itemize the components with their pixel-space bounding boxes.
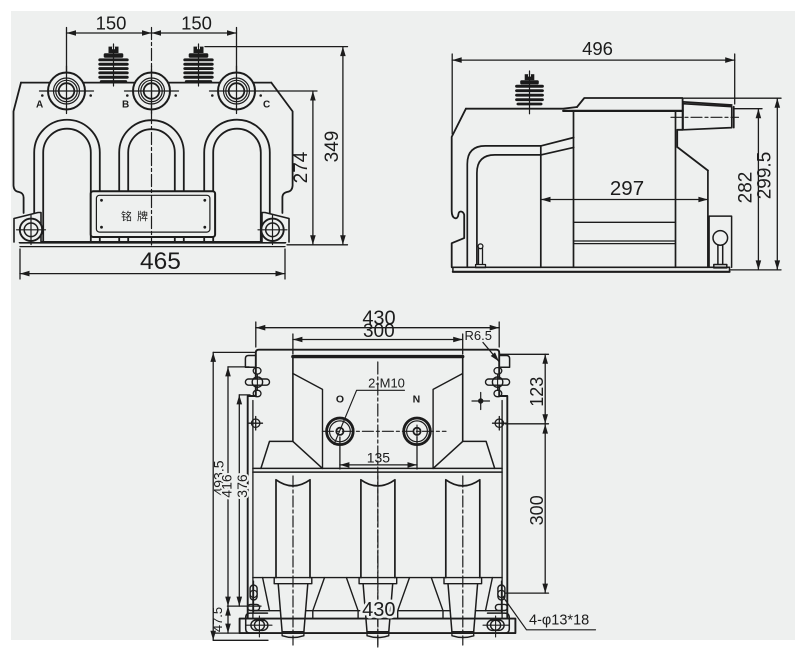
svg-text:150: 150 <box>96 13 127 34</box>
svg-text:123: 123 <box>527 377 547 407</box>
svg-text:47.5: 47.5 <box>210 607 225 632</box>
svg-text:465: 465 <box>140 248 181 275</box>
svg-text:416: 416 <box>219 474 235 498</box>
svg-text:C: C <box>263 100 270 111</box>
svg-text:274: 274 <box>291 151 312 183</box>
svg-text:496: 496 <box>582 38 613 59</box>
svg-text:R6.5: R6.5 <box>465 328 492 343</box>
svg-text:376: 376 <box>234 474 250 498</box>
svg-text:300: 300 <box>363 321 395 342</box>
svg-text:135: 135 <box>367 449 391 465</box>
svg-text:299.5: 299.5 <box>755 152 776 200</box>
svg-text:150: 150 <box>181 13 212 34</box>
svg-text:铭牌: 铭牌 <box>121 209 153 223</box>
svg-text:N: N <box>413 393 421 405</box>
svg-text:4-φ13*18: 4-φ13*18 <box>529 613 589 629</box>
svg-text:B: B <box>122 100 129 111</box>
svg-text:430: 430 <box>362 599 395 621</box>
svg-text:A: A <box>36 100 43 111</box>
svg-text:297: 297 <box>610 177 644 200</box>
svg-text:2-M10: 2-M10 <box>368 376 405 391</box>
svg-text:349: 349 <box>322 131 343 163</box>
svg-text:O: O <box>336 393 344 405</box>
svg-text:282: 282 <box>736 172 757 204</box>
svg-text:300: 300 <box>527 495 547 525</box>
